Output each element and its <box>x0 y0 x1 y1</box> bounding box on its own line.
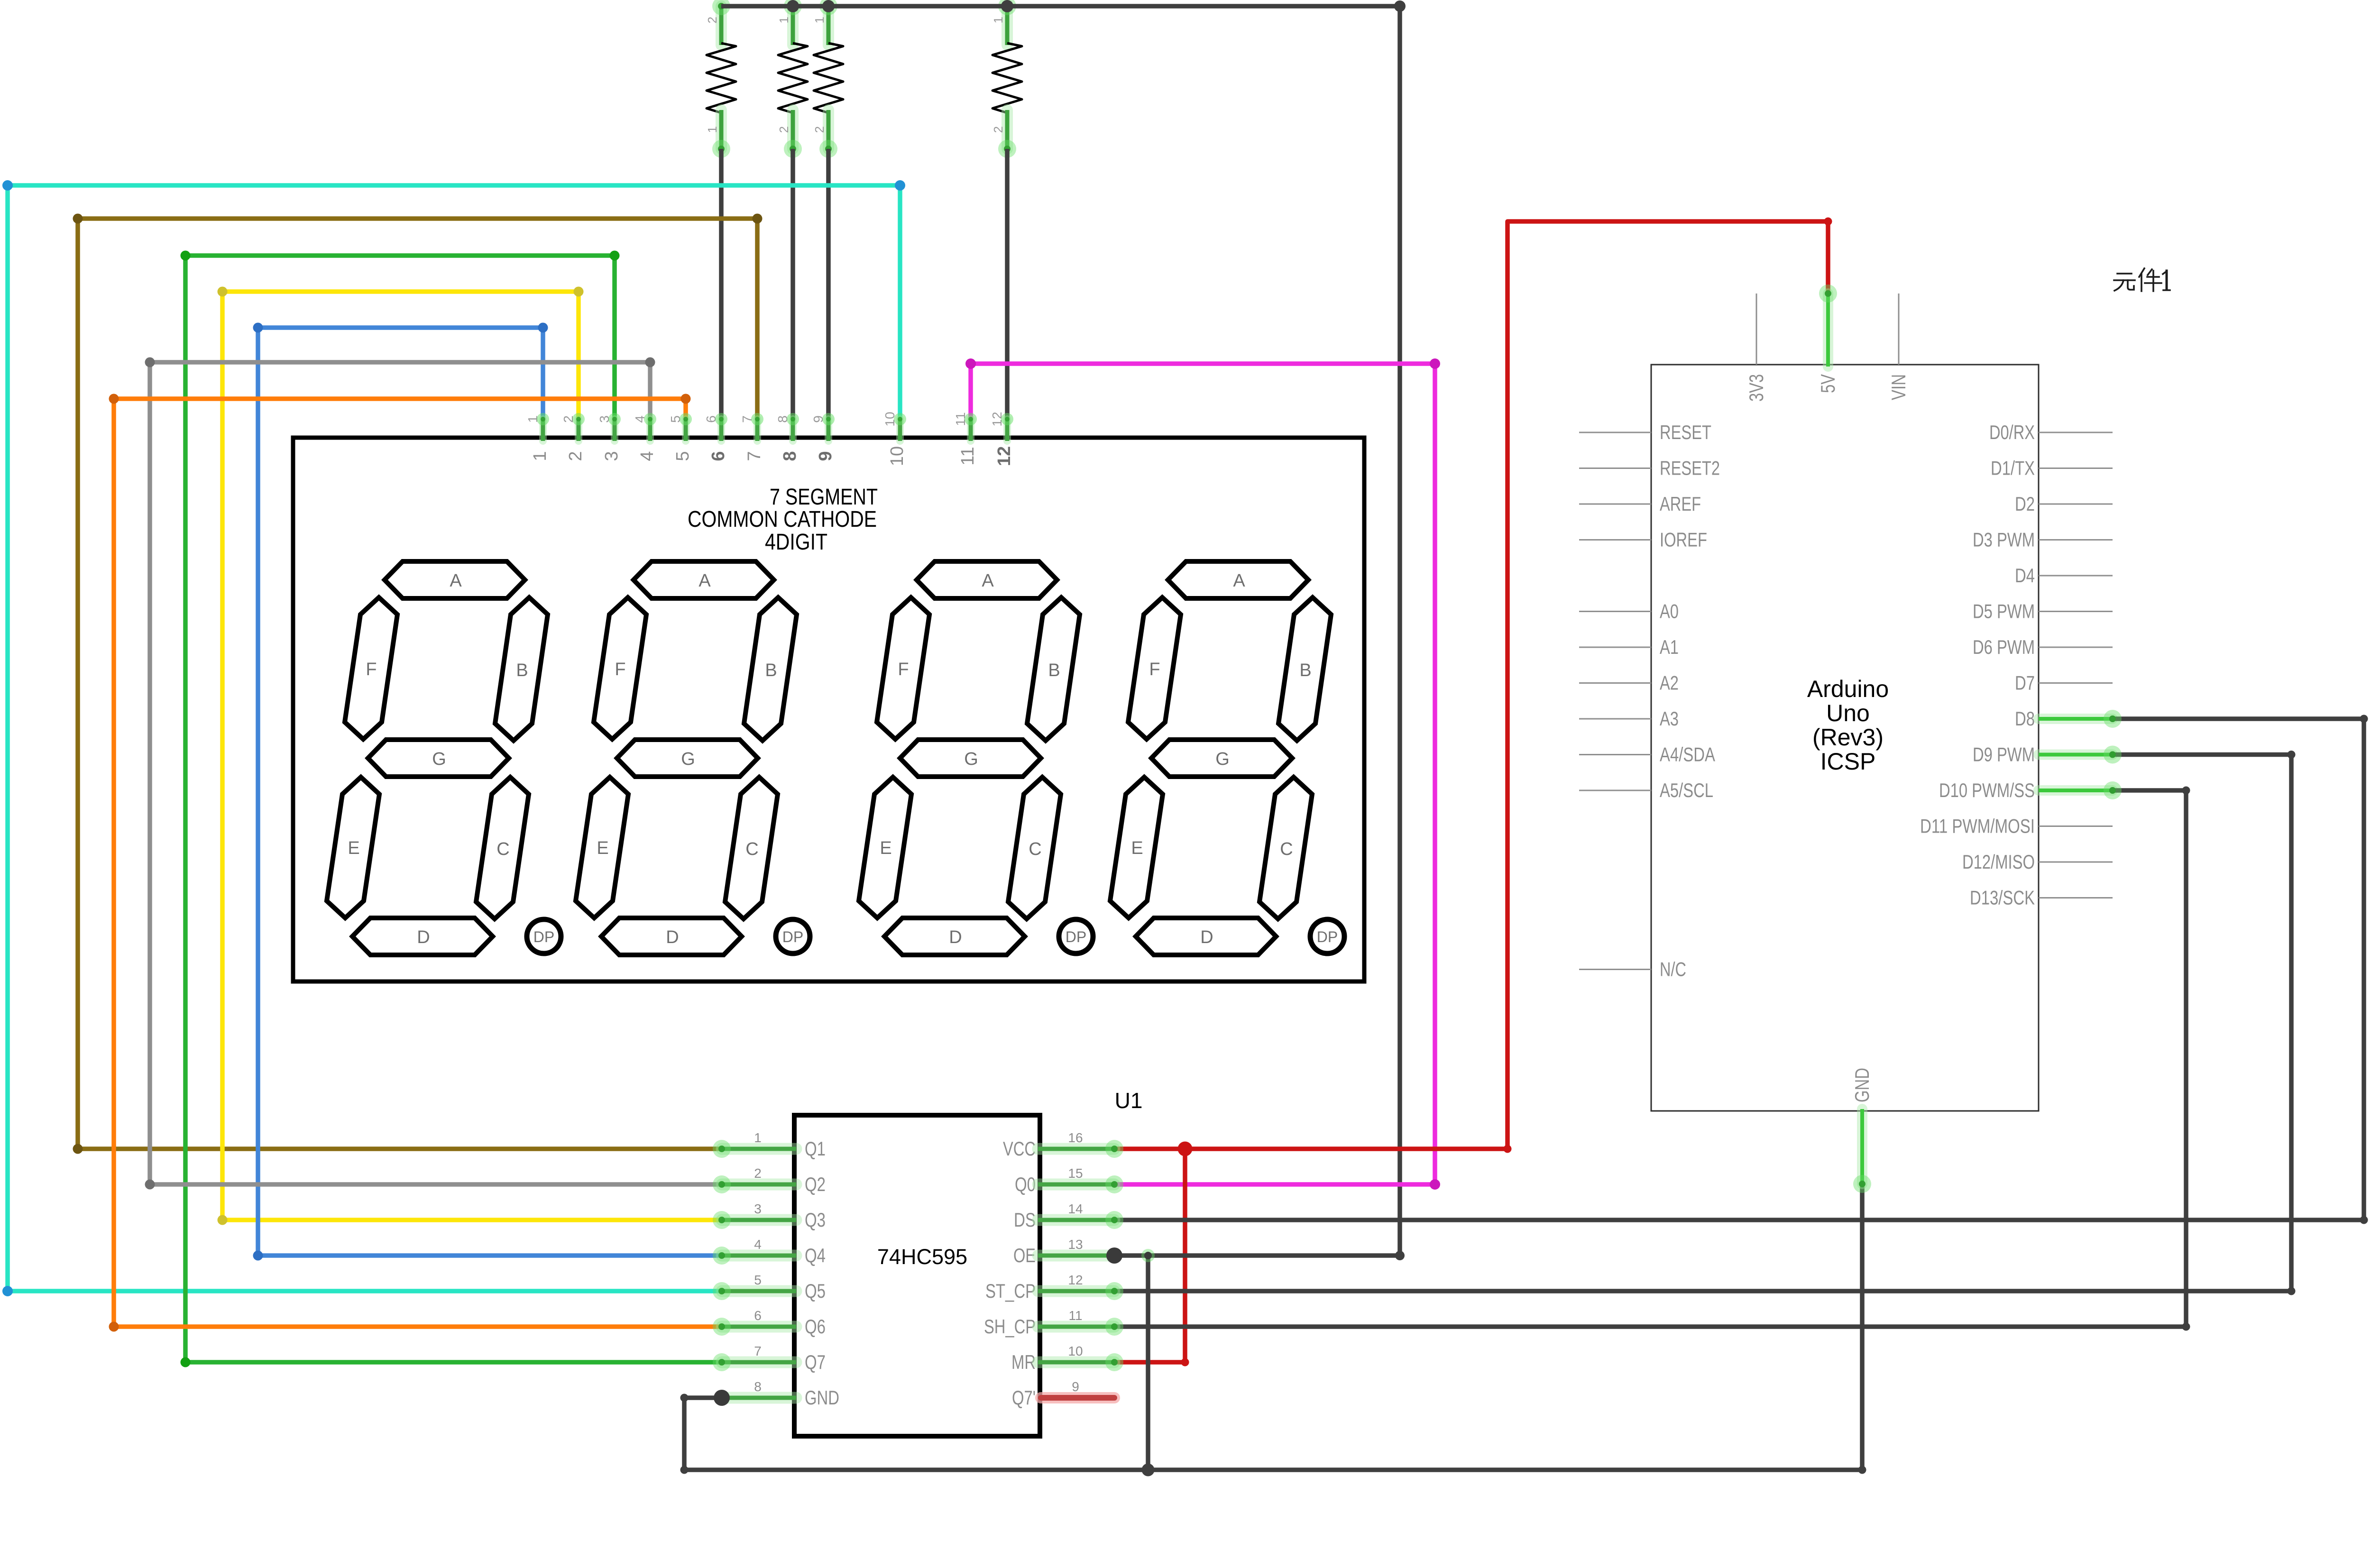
svg-text:7: 7 <box>754 1344 762 1358</box>
svg-text:A0: A0 <box>1660 600 1679 623</box>
svg-text:Uno: Uno <box>1826 700 1870 726</box>
svg-text:B: B <box>1048 660 1060 680</box>
svg-text:Q4: Q4 <box>805 1244 826 1266</box>
svg-text:A: A <box>450 571 462 591</box>
svg-text:D4: D4 <box>2015 564 2035 587</box>
svg-text:D2: D2 <box>2015 493 2035 515</box>
svg-text:8: 8 <box>754 1379 762 1394</box>
svg-text:Q3: Q3 <box>805 1209 826 1231</box>
svg-text:D: D <box>949 927 962 947</box>
svg-text:10: 10 <box>1068 1344 1083 1358</box>
svg-text:A3: A3 <box>1660 707 1679 730</box>
svg-text:Q7: Q7 <box>805 1351 826 1373</box>
svg-text:RESET: RESET <box>1660 421 1711 443</box>
svg-text:A1: A1 <box>1660 636 1679 658</box>
svg-text:D: D <box>666 927 679 947</box>
svg-text:N/C: N/C <box>1660 958 1686 981</box>
svg-text:13: 13 <box>1068 1237 1083 1252</box>
svg-text:D11 PWM/MOSI: D11 PWM/MOSI <box>1920 815 2035 837</box>
svg-text:ICSP: ICSP <box>1820 748 1876 775</box>
svg-text:9: 9 <box>1072 1379 1079 1394</box>
svg-text:6: 6 <box>754 1308 762 1323</box>
svg-text:1: 1 <box>812 17 827 23</box>
svg-text:11: 11 <box>958 447 978 465</box>
svg-text:1: 1 <box>777 17 791 23</box>
svg-text:12: 12 <box>994 446 1014 466</box>
svg-text:VIN: VIN <box>1887 374 1910 400</box>
svg-text:GND: GND <box>1851 1068 1873 1102</box>
svg-text:D9 PWM: D9 PWM <box>1973 743 2035 766</box>
svg-text:1: 1 <box>705 126 719 133</box>
svg-text:1: 1 <box>754 1130 762 1145</box>
svg-text:2: 2 <box>566 451 586 461</box>
svg-text:15: 15 <box>1068 1166 1083 1181</box>
svg-text:D1/TX: D1/TX <box>1991 457 2035 479</box>
svg-text:4: 4 <box>637 451 657 461</box>
svg-text:5V: 5V <box>1817 374 1839 393</box>
svg-text:B: B <box>1299 660 1311 680</box>
svg-text:E: E <box>348 838 359 858</box>
svg-text:DP: DP <box>782 928 803 945</box>
svg-text:E: E <box>1131 838 1143 858</box>
svg-text:D10 PWM/SS: D10 PWM/SS <box>1939 779 2035 801</box>
svg-text:C: C <box>745 839 758 859</box>
svg-text:A: A <box>698 571 711 591</box>
svg-text:2: 2 <box>991 126 1005 133</box>
svg-text:Q2: Q2 <box>805 1173 826 1195</box>
svg-text:AREF: AREF <box>1660 493 1701 515</box>
svg-text:3: 3 <box>754 1201 762 1216</box>
svg-text:F: F <box>615 660 625 679</box>
svg-text:Q6: Q6 <box>805 1315 826 1338</box>
svg-text:14: 14 <box>1068 1201 1083 1216</box>
svg-text:A5/SCL: A5/SCL <box>1660 779 1713 801</box>
svg-text:11: 11 <box>1068 1308 1082 1323</box>
svg-text:DP: DP <box>1066 928 1086 945</box>
svg-text:4: 4 <box>754 1237 762 1252</box>
svg-text:F: F <box>366 660 377 679</box>
svg-text:(Rev3): (Rev3) <box>1812 724 1884 751</box>
svg-text:7: 7 <box>744 451 764 461</box>
svg-text:E: E <box>880 838 891 858</box>
svg-text:DP: DP <box>533 928 554 945</box>
svg-text:16: 16 <box>1068 1130 1083 1145</box>
svg-text:8: 8 <box>780 451 800 461</box>
svg-text:D6 PWM: D6 PWM <box>1973 636 2035 658</box>
svg-text:DP: DP <box>1317 928 1338 945</box>
svg-text:Q5: Q5 <box>805 1280 826 1302</box>
svg-text:D8: D8 <box>2015 707 2035 730</box>
svg-text:U1: U1 <box>1115 1088 1143 1113</box>
svg-text:D: D <box>1200 927 1213 947</box>
svg-text:D0/RX: D0/RX <box>1989 421 2035 443</box>
svg-text:F: F <box>898 660 909 679</box>
svg-text:1: 1 <box>530 451 550 461</box>
svg-text:D7: D7 <box>2015 672 2035 694</box>
svg-text:MR: MR <box>1011 1351 1036 1373</box>
svg-text:2: 2 <box>777 126 791 133</box>
svg-text:G: G <box>1215 749 1230 769</box>
svg-text:C: C <box>1280 839 1293 859</box>
svg-text:5: 5 <box>673 451 693 461</box>
svg-text:B: B <box>516 660 528 680</box>
svg-text:D13/SCK: D13/SCK <box>1970 887 2035 909</box>
svg-text:12: 12 <box>1068 1273 1083 1287</box>
svg-text:Arduino: Arduino <box>1807 676 1889 702</box>
svg-text:74HC595: 74HC595 <box>877 1245 967 1269</box>
svg-text:G: G <box>681 749 695 769</box>
svg-text:3: 3 <box>602 451 622 461</box>
svg-text:Q1: Q1 <box>805 1137 826 1160</box>
svg-text:2: 2 <box>812 126 827 133</box>
svg-text:5: 5 <box>754 1273 762 1287</box>
svg-text:9: 9 <box>816 451 836 461</box>
svg-text:Q7': Q7' <box>1012 1386 1036 1409</box>
svg-text:3V3: 3V3 <box>1745 374 1767 402</box>
svg-text:D3 PWM: D3 PWM <box>1973 529 2035 551</box>
svg-text:D: D <box>417 927 430 947</box>
svg-text:G: G <box>964 749 978 769</box>
svg-text:C: C <box>1029 839 1041 859</box>
svg-text:10: 10 <box>887 446 907 466</box>
svg-text:VCC: VCC <box>1003 1137 1036 1160</box>
svg-text:2: 2 <box>754 1166 762 1181</box>
svg-text:A2: A2 <box>1660 672 1679 694</box>
svg-text:D12/MISO: D12/MISO <box>1962 851 2035 873</box>
svg-text:A: A <box>1233 571 1245 591</box>
svg-text:D5 PWM: D5 PWM <box>1973 600 2035 623</box>
svg-text:1: 1 <box>991 17 1005 23</box>
svg-text:G: G <box>432 749 446 769</box>
svg-text:IOREF: IOREF <box>1660 529 1707 551</box>
svg-text:4DIGIT: 4DIGIT <box>765 530 827 555</box>
svg-text:E: E <box>597 838 608 858</box>
svg-text:GND: GND <box>805 1386 839 1409</box>
svg-text:SH_CP: SH_CP <box>984 1315 1036 1338</box>
svg-text:RESET2: RESET2 <box>1660 457 1720 479</box>
svg-text:2: 2 <box>705 17 719 23</box>
svg-text:A4/SDA: A4/SDA <box>1660 743 1715 766</box>
svg-text:6: 6 <box>708 451 728 461</box>
svg-text:C: C <box>496 839 509 859</box>
svg-text:B: B <box>765 660 777 680</box>
svg-text:A: A <box>982 571 994 591</box>
svg-text:COMMON CATHODE: COMMON CATHODE <box>688 507 877 532</box>
svg-text:F: F <box>1149 660 1160 679</box>
svg-text:7 SEGMENT: 7 SEGMENT <box>770 485 878 510</box>
svg-text:ST_CP: ST_CP <box>985 1280 1036 1302</box>
